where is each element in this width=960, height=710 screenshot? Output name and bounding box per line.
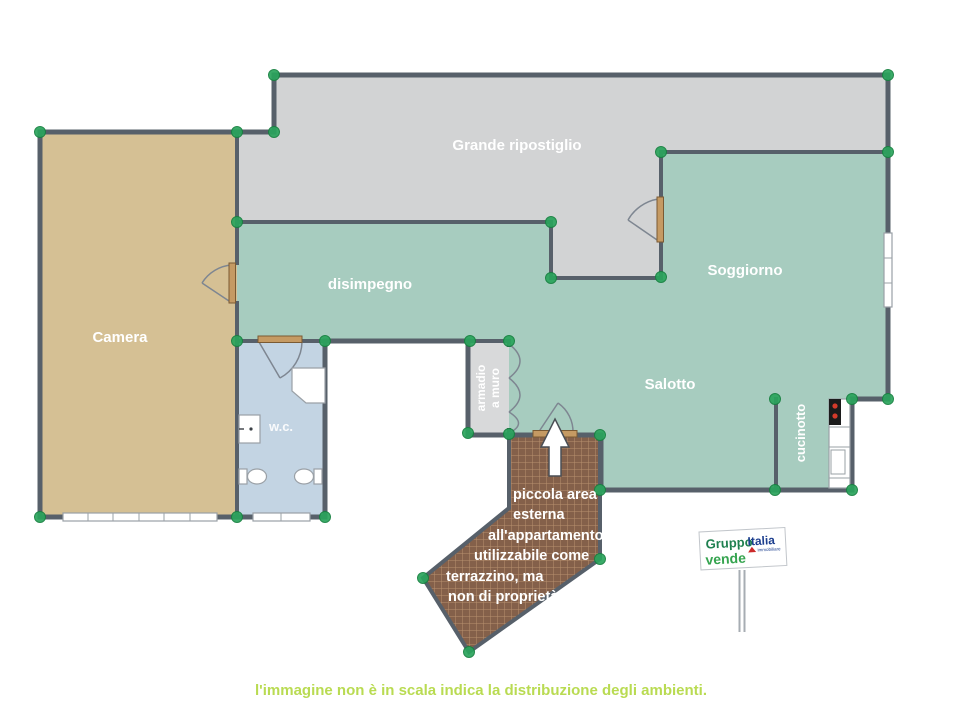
window-camera [63, 513, 217, 521]
vertex-marker [269, 70, 280, 81]
room-camera-area [40, 132, 237, 517]
vertex-marker [847, 394, 858, 405]
label-grande-ripostiglio: Grande ripostiglio [452, 137, 581, 154]
toilet [239, 469, 267, 484]
vertex-marker [595, 430, 606, 441]
vertex-marker [847, 485, 858, 496]
label-disimpegno: disimpegno [328, 276, 412, 293]
vertex-marker [269, 127, 280, 138]
agency-sign: Gruppo Italia immobiliare vende [699, 527, 787, 632]
window-soggiorno [884, 233, 892, 307]
label-camera: Camera [92, 329, 148, 346]
vertex-marker [546, 273, 557, 284]
stove-icon [829, 399, 841, 425]
svg-text:cucinotto: cucinotto [793, 404, 808, 463]
vertex-marker [35, 127, 46, 138]
vertex-marker [883, 147, 894, 158]
sink [239, 415, 260, 443]
vertex-marker [418, 573, 429, 584]
vertex-marker [546, 217, 557, 228]
vertex-marker [770, 485, 781, 496]
vertex-marker [320, 512, 331, 523]
floor-plan-drawing: Grande ripostiglio disimpegno Soggiorno … [0, 0, 960, 710]
svg-text:armadio: armadio [474, 365, 488, 412]
label-wc: w.c. [268, 419, 293, 434]
sign-action-word: vende [705, 550, 746, 568]
vertex-marker [883, 70, 894, 81]
vertex-marker [504, 336, 515, 347]
svg-text:esterna: esterna [513, 507, 566, 523]
vertex-marker [464, 647, 475, 658]
vertex-marker [320, 336, 331, 347]
svg-text:non di proprietà.: non di proprietà. [448, 589, 562, 605]
svg-text:utilizzabile come: utilizzabile come [474, 548, 589, 564]
disclaimer-caption: l'immagine non è in scala indica la dist… [255, 682, 707, 699]
bidet [295, 469, 323, 484]
label-salotto: Salotto [645, 376, 696, 393]
vertex-marker [465, 336, 476, 347]
kitchen-counter [829, 399, 850, 488]
vertex-marker [232, 512, 243, 523]
vertex-marker [463, 428, 474, 439]
sign-post [740, 570, 745, 632]
vertex-marker [35, 512, 46, 523]
vertex-marker [232, 217, 243, 228]
vertex-marker [595, 554, 606, 565]
svg-text:piccola area: piccola area [513, 487, 598, 503]
window-wc [253, 513, 310, 521]
sign-brand-word1: Gruppo [705, 534, 753, 551]
label-armadio-a-muro: armadio a muro [474, 365, 502, 412]
vertex-marker [504, 429, 515, 440]
vertex-marker [883, 394, 894, 405]
vertex-marker [656, 272, 667, 283]
vertex-marker [232, 336, 243, 347]
label-cucinotto: cucinotto [793, 404, 808, 463]
vertex-marker [770, 394, 781, 405]
vertex-marker [656, 147, 667, 158]
svg-text:all'appartamento: all'appartamento [488, 528, 604, 544]
vertex-marker [232, 127, 243, 138]
floor-plan-page: Grande ripostiglio disimpegno Soggiorno … [0, 0, 960, 710]
svg-text:terrazzino, ma: terrazzino, ma [446, 569, 544, 585]
svg-text:a muro: a muro [488, 368, 502, 408]
label-soggiorno: Soggiorno [708, 262, 783, 279]
